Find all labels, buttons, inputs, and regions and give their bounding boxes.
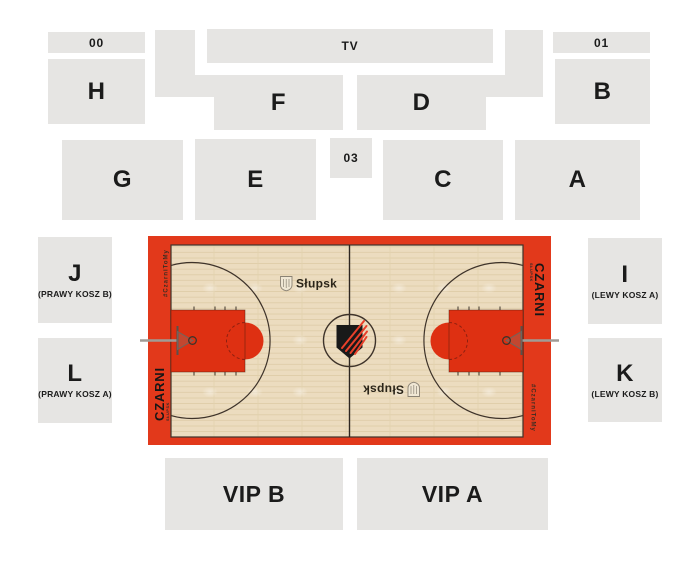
section-vip-b[interactable]: VIP B xyxy=(165,458,343,530)
section-e[interactable]: E xyxy=(195,139,316,220)
section-01[interactable]: 01 xyxy=(553,32,650,53)
section-h[interactable]: H xyxy=(48,59,145,124)
section-c-label: C xyxy=(434,168,452,192)
section-tv-label: TV xyxy=(342,40,359,52)
section-k[interactable]: K (LEWY KOSZ B) xyxy=(588,338,662,422)
city-crest-top-icon xyxy=(281,277,293,291)
city-label-bottom-group: Słupsk xyxy=(363,382,420,396)
stand-block-right xyxy=(505,30,543,97)
section-c[interactable]: C xyxy=(383,140,503,220)
section-f-label: F xyxy=(271,91,286,115)
section-g[interactable]: G xyxy=(62,140,183,220)
section-03[interactable]: 03 xyxy=(330,138,372,178)
section-00[interactable]: 00 xyxy=(48,32,145,53)
section-b[interactable]: B xyxy=(555,59,650,124)
section-h-label: H xyxy=(88,80,106,104)
section-01-label: 01 xyxy=(594,37,609,49)
stand-block-right-step xyxy=(486,75,505,97)
section-g-label: G xyxy=(113,168,132,192)
section-l-sublabel: (PRAWY KOSZ A) xyxy=(38,390,112,399)
stand-block-left xyxy=(155,30,195,97)
basketball-court: Słupsk Słupsk CZARNI SŁUPSK #CzarniToMy … xyxy=(148,236,551,445)
section-03-label: 03 xyxy=(344,152,359,164)
section-tv: TV xyxy=(207,29,493,63)
section-d[interactable]: D xyxy=(357,75,486,130)
section-i[interactable]: I (LEWY KOSZ A) xyxy=(588,238,662,324)
team-sub-left: SŁUPSK xyxy=(166,402,170,421)
section-e-label: E xyxy=(247,168,264,192)
section-f[interactable]: F xyxy=(214,75,343,130)
team-sub-right: SŁUPSK xyxy=(529,263,533,282)
section-a[interactable]: A xyxy=(515,140,640,220)
section-00-label: 00 xyxy=(89,37,104,49)
hashtag-left: #CzarniToMy xyxy=(164,249,170,297)
section-a-label: A xyxy=(569,168,587,192)
stand-block-left-step xyxy=(195,75,214,97)
section-j-label: J xyxy=(68,262,82,286)
seating-map: 00 TV 01 H F D B G E 03 C A J (PRAWY KOS… xyxy=(0,0,700,561)
section-l-label: L xyxy=(67,362,82,386)
section-vip-a-label: VIP A xyxy=(422,483,483,506)
section-k-label: K xyxy=(616,362,634,386)
city-label-bottom: Słupsk xyxy=(363,383,404,397)
section-d-label: D xyxy=(413,91,431,115)
section-vip-b-label: VIP B xyxy=(223,483,285,506)
section-i-sublabel: (LEWY KOSZ A) xyxy=(592,291,659,300)
team-name-right: CZARNI xyxy=(532,263,547,317)
section-k-sublabel: (LEWY KOSZ B) xyxy=(591,390,658,399)
city-label-top: Słupsk xyxy=(296,277,337,291)
team-name-left: CZARNI xyxy=(152,367,167,421)
section-vip-a[interactable]: VIP A xyxy=(357,458,548,530)
section-l[interactable]: L (PRAWY KOSZ A) xyxy=(38,338,112,423)
section-b-label: B xyxy=(594,80,612,104)
city-crest-bottom-icon xyxy=(408,382,420,396)
hashtag-right: #CzarniToMy xyxy=(530,384,536,432)
section-i-label: I xyxy=(621,263,628,287)
section-j[interactable]: J (PRAWY KOSZ B) xyxy=(38,237,112,323)
section-j-sublabel: (PRAWY KOSZ B) xyxy=(38,290,112,299)
